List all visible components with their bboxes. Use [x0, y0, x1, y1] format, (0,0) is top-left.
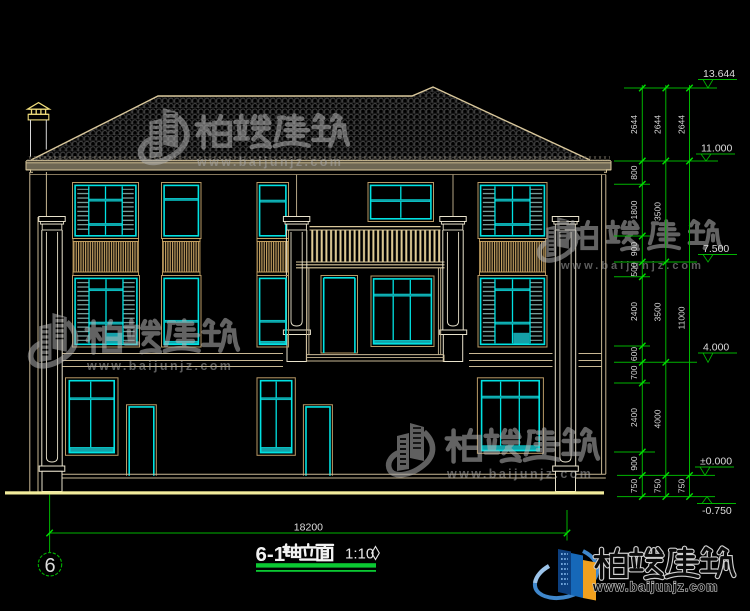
svg-text:3500: 3500 — [653, 302, 663, 321]
svg-text:4000: 4000 — [653, 409, 663, 428]
svg-text:2644: 2644 — [676, 115, 686, 134]
svg-text:2400: 2400 — [629, 408, 639, 427]
svg-text:800: 800 — [629, 165, 639, 179]
svg-text:750: 750 — [676, 479, 686, 493]
svg-text:±0.000: ±0.000 — [700, 456, 732, 468]
svg-text:2644: 2644 — [629, 115, 639, 134]
svg-text:700: 700 — [629, 365, 639, 379]
svg-text:900: 900 — [629, 242, 639, 256]
svg-text:600: 600 — [629, 347, 639, 361]
svg-text:6-1: 6-1 — [256, 543, 286, 566]
svg-text:11000: 11000 — [676, 306, 686, 329]
svg-text:3500: 3500 — [653, 202, 663, 221]
svg-text:7.500: 7.500 — [703, 243, 729, 255]
svg-text:18200: 18200 — [294, 522, 323, 534]
svg-text:11.000: 11.000 — [701, 143, 732, 155]
svg-text:750: 750 — [653, 479, 663, 493]
svg-text:13.644: 13.644 — [703, 68, 735, 80]
svg-text:1800: 1800 — [629, 200, 639, 219]
svg-text:www.baijunjz.com: www.baijunjz.com — [592, 580, 718, 594]
svg-text:2644: 2644 — [653, 115, 663, 134]
svg-text:1:10: 1:10 — [345, 546, 374, 563]
svg-text:2400: 2400 — [629, 302, 639, 321]
svg-text:6: 6 — [44, 555, 55, 577]
svg-text:-0.750: -0.750 — [702, 505, 732, 517]
svg-text:www.baijunjz.com: www.baijunjz.com — [446, 467, 593, 481]
svg-text:www.baijunjz.com: www.baijunjz.com — [86, 359, 233, 373]
svg-text:4.000: 4.000 — [703, 342, 729, 354]
svg-text:750: 750 — [629, 479, 639, 493]
svg-text:900: 900 — [629, 456, 639, 470]
svg-text:500: 500 — [629, 262, 639, 276]
svg-text:www.baijunjz.com: www.baijunjz.com — [196, 155, 343, 169]
